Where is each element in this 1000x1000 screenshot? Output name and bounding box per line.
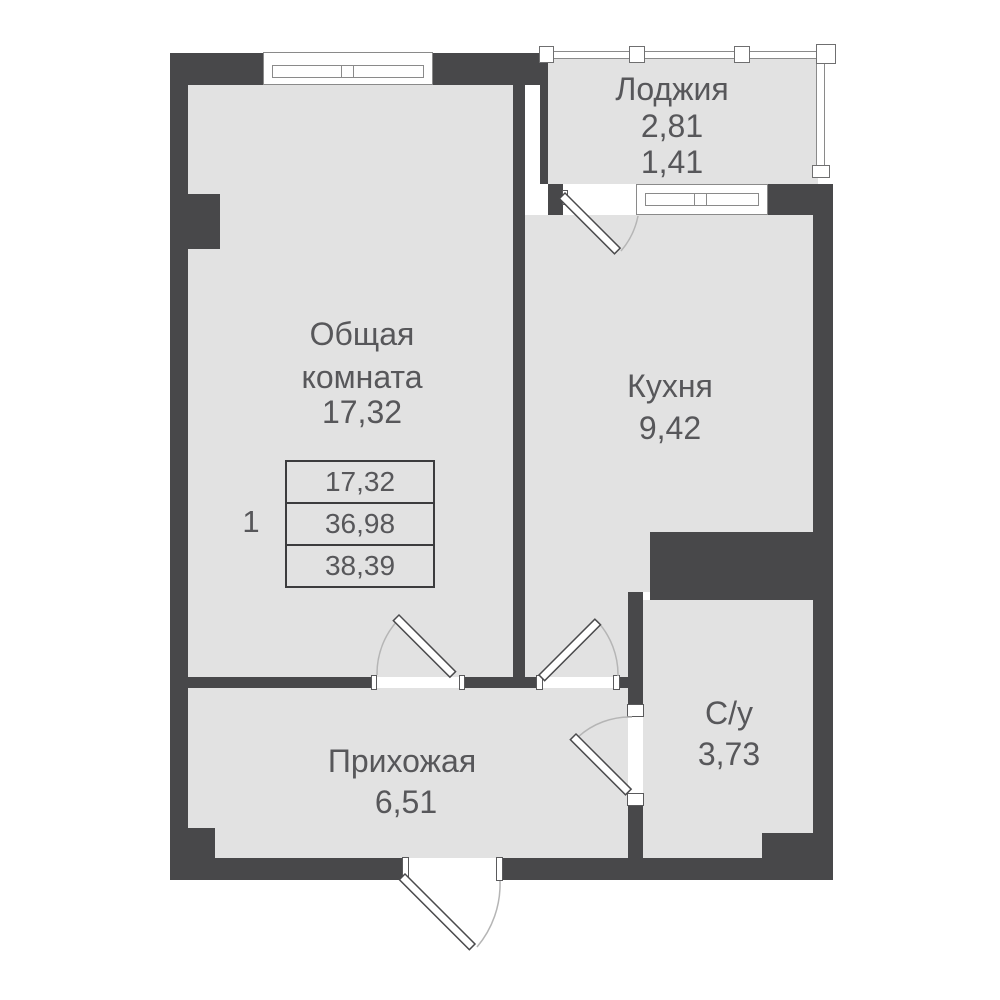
- bathroom-name-label: С/у: [609, 695, 849, 731]
- living-name-label-line2: комната: [242, 359, 482, 395]
- floor-plan: Лоджия 2,81 1,41 Общая комната 17,32 Кух…: [0, 0, 1000, 1000]
- hallway-name-label: Прихожая: [282, 743, 522, 779]
- summary-living-area: 17,32: [287, 462, 433, 504]
- loggia-name-label: Лоджия: [552, 71, 792, 107]
- kitchen-door-leaf: [539, 619, 601, 681]
- bathroom-area-label: 3,73: [609, 736, 849, 772]
- area-summary-table: 17,32 36,98 38,39: [285, 460, 435, 588]
- kitchen-name-label: Кухня: [550, 368, 790, 404]
- balcony-door-leaf: [559, 193, 620, 254]
- loggia-area-reduced-label: 1,41: [552, 144, 792, 180]
- kitchen-area-label: 9,42: [550, 410, 790, 446]
- hallway-area-label: 6,51: [286, 784, 526, 820]
- summary-total-area: 38,39: [287, 546, 433, 586]
- rooms-count-label: 1: [230, 504, 272, 540]
- living-door-leaf: [393, 615, 455, 677]
- doors-overlay: [0, 0, 1000, 1000]
- loggia-area-label: 2,81: [552, 108, 792, 144]
- living-area-label: 17,32: [242, 394, 482, 430]
- summary-area-without-loggia: 36,98: [287, 504, 433, 546]
- balcony-door-arc: [621, 216, 638, 251]
- kitchen-door-arc: [597, 621, 618, 676]
- entrance-door-arc: [477, 881, 500, 947]
- entrance-door-leaf: [399, 874, 475, 950]
- living-name-label-line1: Общая: [242, 316, 482, 352]
